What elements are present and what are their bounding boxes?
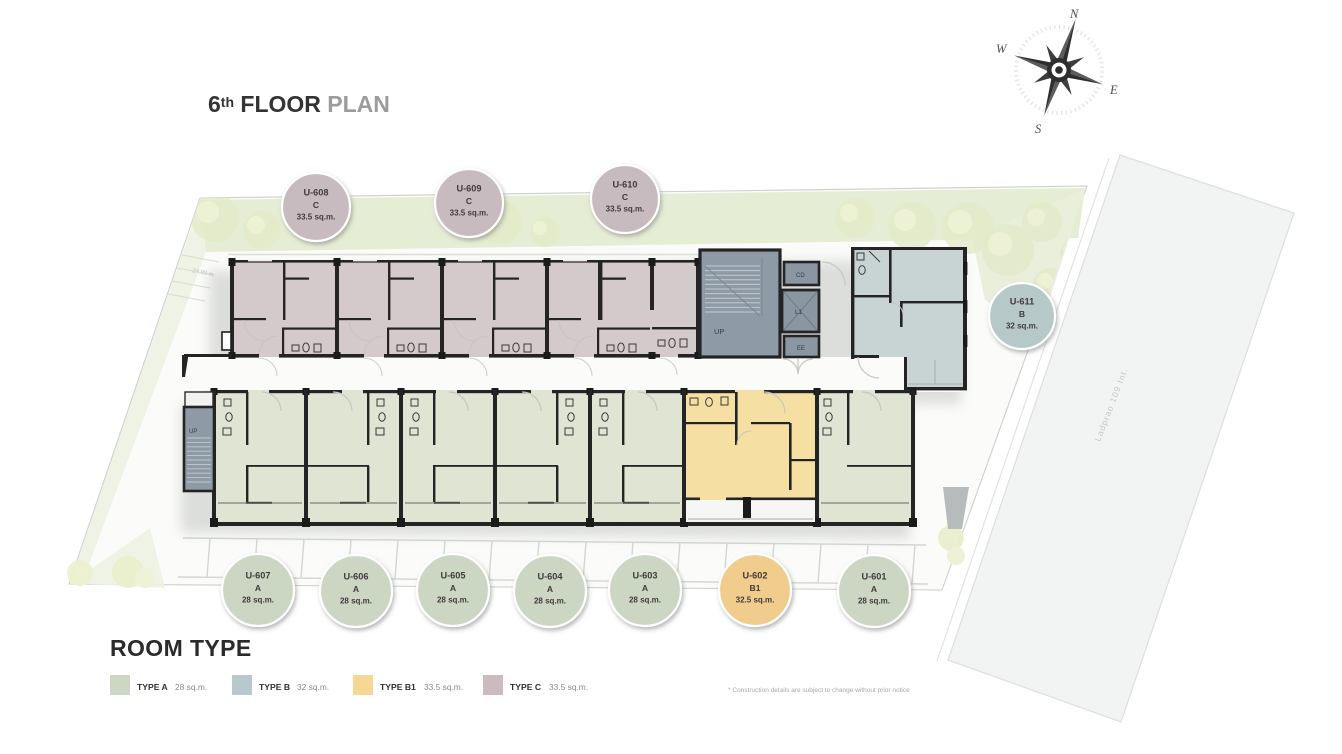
svg-text:B1: B1 bbox=[750, 583, 761, 593]
svg-text:33.5 sq.m.: 33.5 sq.m. bbox=[424, 682, 463, 692]
svg-text:28 sq.m.: 28 sq.m. bbox=[534, 597, 566, 606]
svg-text:U-610: U-610 bbox=[612, 180, 637, 190]
svg-text:CD: CD bbox=[796, 273, 805, 279]
svg-text:B: B bbox=[1019, 309, 1025, 319]
svg-text:U-606: U-606 bbox=[343, 572, 368, 582]
svg-text:6th FLOOR PLAN: 6th FLOOR PLAN bbox=[208, 91, 390, 117]
svg-text:U-607: U-607 bbox=[245, 571, 270, 581]
svg-text:28 sq.m.: 28 sq.m. bbox=[175, 682, 207, 692]
svg-text:28 sq.m.: 28 sq.m. bbox=[242, 596, 274, 605]
svg-text:ROOM TYPE: ROOM TYPE bbox=[110, 635, 252, 661]
svg-text:U-609: U-609 bbox=[456, 184, 481, 194]
svg-text:A: A bbox=[642, 583, 648, 593]
svg-text:A: A bbox=[547, 584, 553, 594]
svg-text:C: C bbox=[313, 200, 319, 210]
svg-text:U-602: U-602 bbox=[742, 571, 767, 581]
svg-text:28 sq.m.: 28 sq.m. bbox=[858, 597, 890, 606]
svg-text:TYPE A: TYPE A bbox=[137, 682, 168, 692]
svg-text:N: N bbox=[1069, 7, 1079, 21]
svg-text:U-608: U-608 bbox=[303, 188, 328, 198]
svg-text:32 sq.m.: 32 sq.m. bbox=[297, 682, 329, 692]
svg-text:A: A bbox=[255, 583, 261, 593]
svg-text:S: S bbox=[1035, 122, 1042, 136]
svg-text:E: E bbox=[1109, 83, 1118, 97]
svg-text:33.5 sq.m.: 33.5 sq.m. bbox=[297, 213, 336, 222]
svg-text:TYPE B1: TYPE B1 bbox=[380, 682, 416, 692]
svg-text:W: W bbox=[996, 42, 1008, 56]
svg-text:L1: L1 bbox=[795, 309, 803, 316]
svg-text:32 sq.m.: 32 sq.m. bbox=[1006, 322, 1038, 331]
svg-text:TYPE C: TYPE C bbox=[510, 682, 541, 692]
svg-text:UP: UP bbox=[714, 327, 724, 336]
svg-text:U-604: U-604 bbox=[537, 572, 563, 582]
svg-text:28 sq.m.: 28 sq.m. bbox=[629, 596, 661, 605]
svg-text:33.5 sq.m.: 33.5 sq.m. bbox=[549, 682, 588, 692]
svg-text:32.5 sq.m.: 32.5 sq.m. bbox=[736, 596, 775, 605]
svg-text:EE: EE bbox=[797, 346, 805, 352]
svg-text:* Construction details are sub: * Construction details are subject to ch… bbox=[728, 687, 910, 694]
svg-text:C: C bbox=[466, 196, 472, 206]
svg-text:33.5 sq.m.: 33.5 sq.m. bbox=[450, 209, 489, 218]
svg-text:28 sq.m.: 28 sq.m. bbox=[340, 597, 372, 606]
svg-text:U-601: U-601 bbox=[861, 572, 886, 582]
svg-text:A: A bbox=[871, 584, 877, 594]
svg-text:A: A bbox=[450, 583, 456, 593]
svg-text:U-603: U-603 bbox=[632, 571, 657, 581]
svg-text:A: A bbox=[353, 584, 359, 594]
svg-text:TYPE B: TYPE B bbox=[259, 682, 290, 692]
svg-text:U-611: U-611 bbox=[1010, 297, 1035, 307]
svg-text:U-605: U-605 bbox=[440, 571, 465, 581]
svg-text:33.5 sq.m.: 33.5 sq.m. bbox=[606, 205, 645, 214]
svg-text:UP: UP bbox=[189, 429, 197, 435]
svg-text:28 sq.m.: 28 sq.m. bbox=[437, 596, 469, 605]
svg-text:C: C bbox=[622, 192, 628, 202]
